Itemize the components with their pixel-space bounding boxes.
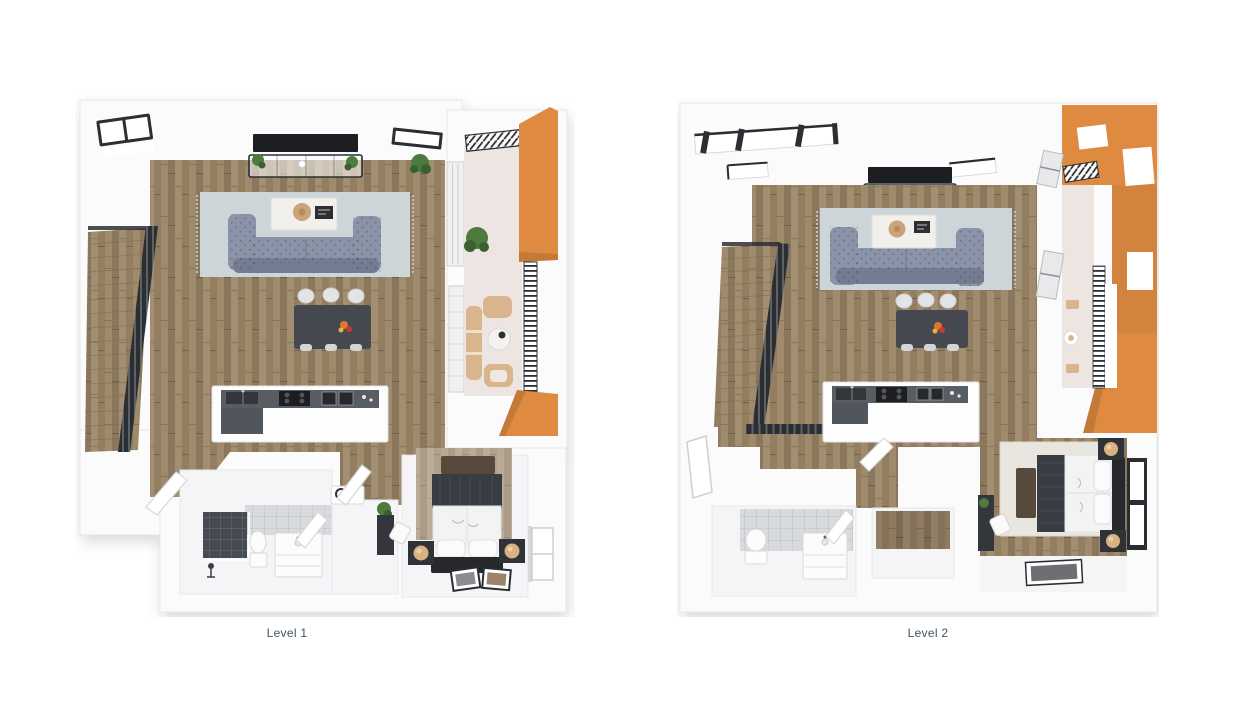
dining-chairs (298, 288, 364, 303)
nightstand-right (499, 539, 525, 563)
tv-screen (868, 167, 952, 183)
closet (872, 508, 954, 578)
floor-artwork (1025, 560, 1082, 586)
lamp (1106, 534, 1120, 548)
tv-screen (253, 134, 358, 152)
void-railing-side (1093, 266, 1105, 388)
floorplan-level-2 (677, 97, 1159, 617)
bathroom (180, 470, 332, 594)
dining-table (294, 305, 371, 349)
void-floor (1062, 185, 1094, 388)
bedroom (978, 438, 1147, 592)
balcony-orange-wall (519, 107, 558, 262)
coffee-table (872, 215, 936, 248)
headboard (1112, 457, 1125, 535)
balcony-chair-north (483, 296, 512, 318)
nightstand-south (1100, 530, 1126, 552)
vanity (803, 533, 847, 579)
window-top-left (96, 113, 155, 157)
floorplan-level-1 (75, 95, 575, 617)
dining-table (896, 310, 968, 348)
toilet (745, 529, 767, 564)
floorplan-canvas: Level 1 Level 2 (0, 0, 1240, 707)
nightstand-north (1098, 438, 1124, 460)
kitchen-island (823, 382, 979, 442)
bed-pillow (469, 540, 497, 557)
foot-bench (441, 456, 495, 474)
balcony-railing-side (524, 262, 537, 394)
stove (876, 387, 907, 402)
skylight (1077, 124, 1108, 149)
kitchen-island (212, 386, 388, 442)
level-2-label: Level 2 (883, 626, 973, 640)
bed-pillow (1094, 494, 1111, 524)
balcony-table (488, 328, 510, 350)
tv-console (249, 134, 362, 177)
level-1-label: Level 1 (242, 626, 332, 640)
bathroom (712, 506, 856, 596)
small-window (727, 163, 768, 180)
nightstand-left (408, 541, 434, 565)
lamp (505, 544, 520, 559)
lamp (414, 546, 429, 561)
bed-pillow (1094, 461, 1111, 491)
bedroom-window (528, 526, 553, 582)
balcony-lounge (466, 306, 482, 380)
toilet (250, 531, 267, 567)
void-window (1127, 252, 1153, 290)
bedroom (377, 448, 553, 597)
dining-set (294, 288, 371, 351)
lamp (1104, 442, 1118, 456)
bed-pillow (437, 540, 465, 557)
skylight (1122, 147, 1154, 186)
coffee-table (271, 198, 337, 230)
foot-bench (1016, 468, 1036, 518)
shower (203, 512, 247, 558)
stove (279, 391, 310, 406)
bed-blanket (1037, 455, 1067, 532)
floor-grate (746, 424, 826, 434)
bedroom-window (1127, 458, 1147, 550)
